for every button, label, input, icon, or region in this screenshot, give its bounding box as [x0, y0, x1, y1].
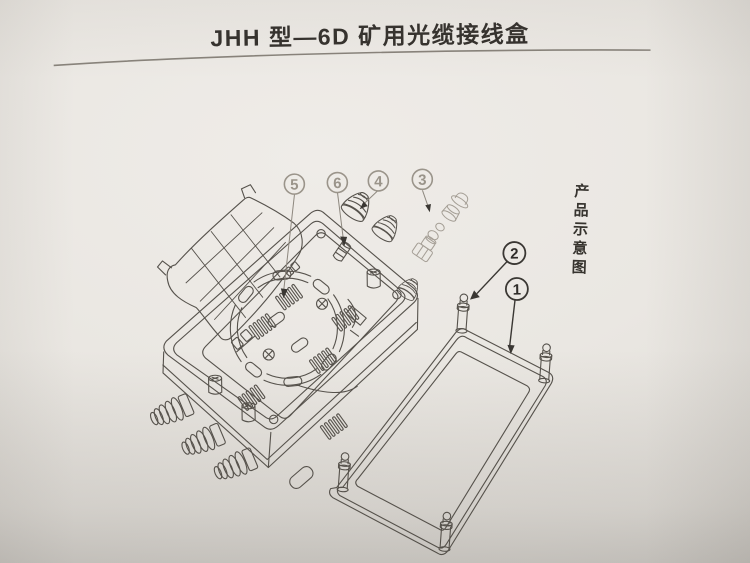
callout-4: 4: [359, 171, 389, 209]
callout-3: 3: [412, 169, 433, 212]
seal-ring: [434, 222, 445, 233]
svg-text:1: 1: [513, 281, 522, 298]
svg-text:4: 4: [374, 173, 383, 190]
gland-nut: [339, 187, 376, 225]
svg-text:3: 3: [418, 172, 427, 189]
title-underline: [54, 48, 651, 65]
seal-ring: [426, 229, 440, 242]
svg-text:2: 2: [510, 245, 519, 262]
callout-1: 1: [506, 278, 529, 354]
lid-plate: [327, 292, 556, 556]
side-caption: 产品示意图: [567, 183, 591, 279]
photographed-page: JHH 型—6D 矿用光缆接线盒: [0, 0, 750, 563]
svg-text:6: 6: [333, 175, 342, 192]
lid-screw: [538, 344, 552, 384]
inner-tube: [332, 241, 351, 263]
cover-grid: [185, 212, 287, 320]
gland-parts: [331, 185, 474, 304]
fiber-clips: [236, 269, 338, 388]
lid-screw: [455, 294, 469, 334]
box-body: [161, 209, 421, 493]
fiber-ring: [230, 270, 346, 386]
svg-text:5: 5: [290, 177, 299, 194]
mounting-foot: [287, 464, 315, 491]
splice-tray: [201, 232, 400, 442]
gland-nut: [370, 210, 403, 244]
exploded-assembly-diagram: 5 6 4 3: [0, 0, 750, 563]
compression-claw: [412, 233, 440, 262]
callout-6: 6: [327, 172, 348, 246]
end-cap: [450, 189, 473, 210]
